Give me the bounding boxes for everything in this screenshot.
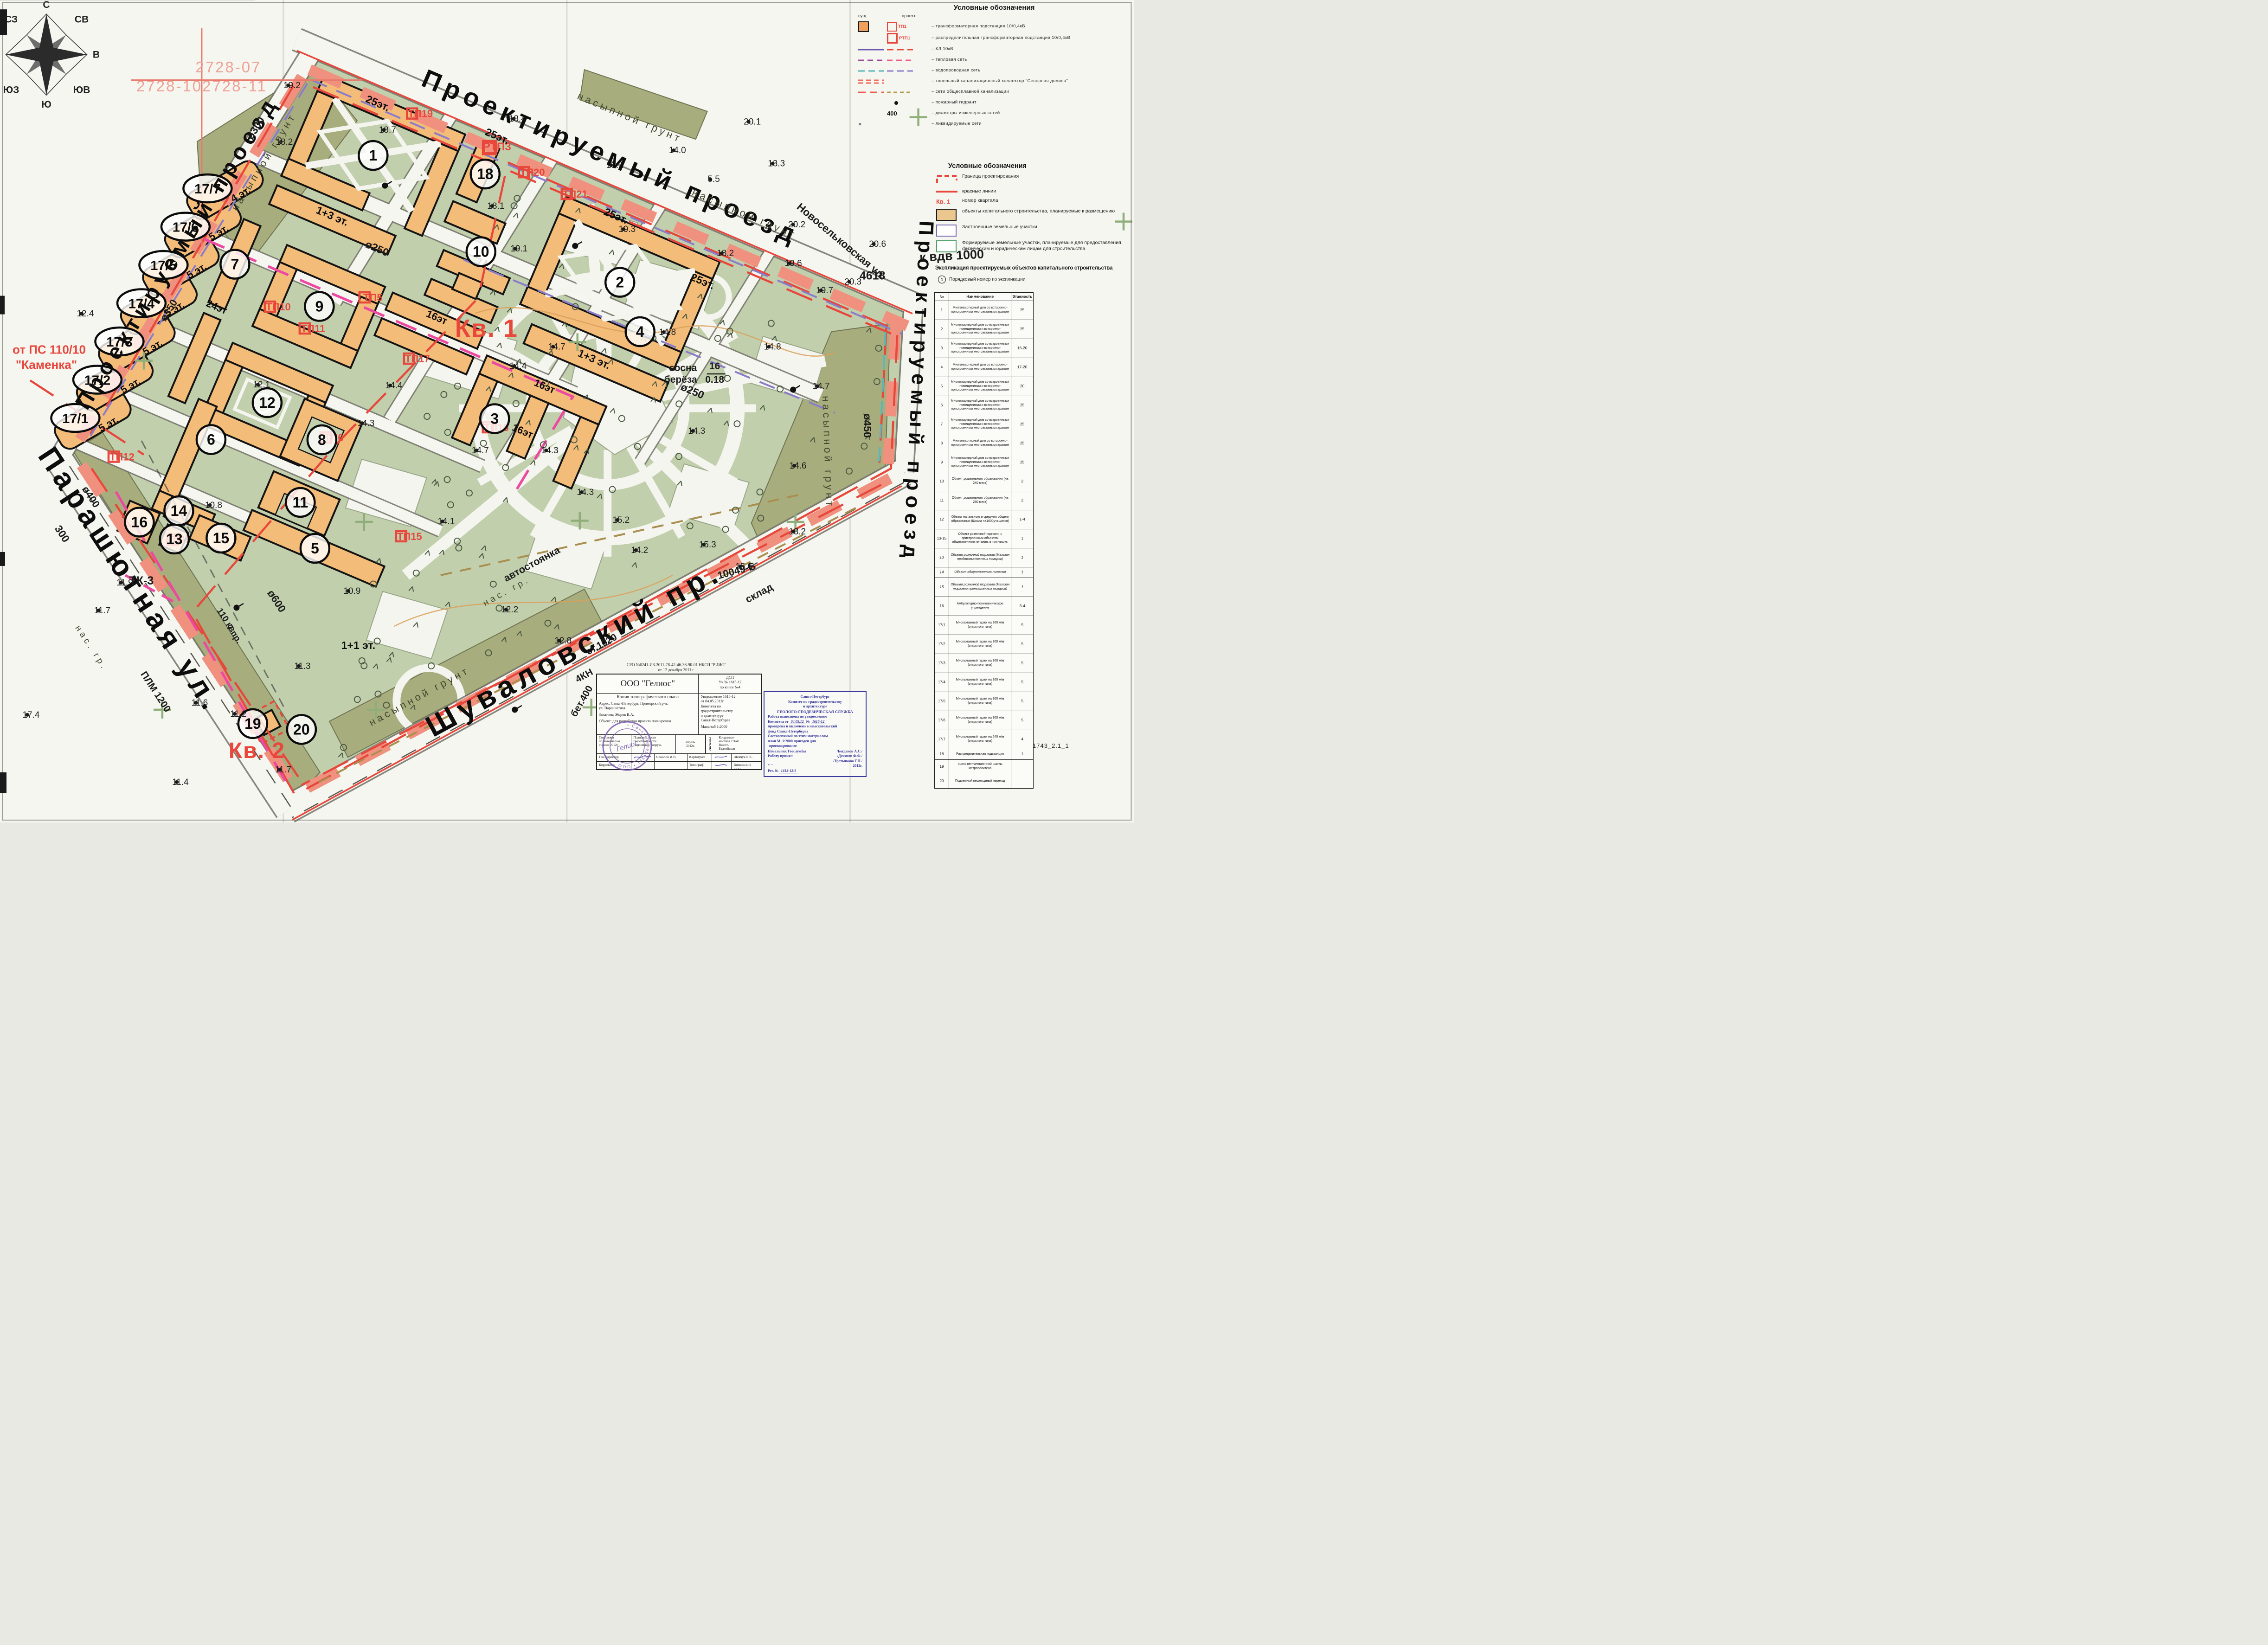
sro-note: СРО №0241-ИЗ-2011-78-42-46-36-90-01 НКСП… bbox=[595, 662, 758, 673]
building-number-text: 1 bbox=[369, 147, 377, 164]
explication-cell: 10 bbox=[935, 472, 949, 491]
explication-cell: Многоквартирный дом со встороено-пристро… bbox=[949, 434, 1011, 453]
elevation-value: 14.3 bbox=[577, 488, 594, 497]
elevation-value: 17.4 bbox=[23, 710, 40, 720]
elevation-value: 14.6 bbox=[790, 461, 807, 471]
explication-cell: 15 bbox=[935, 578, 949, 597]
explication-cell: 17/7 bbox=[935, 730, 949, 749]
explication-row: 17/1Многоэтажный гараж на 300 м/м (откры… bbox=[935, 616, 1034, 635]
diameter-example: 400 bbox=[887, 110, 897, 117]
elevation-value: 14.8 bbox=[659, 328, 676, 337]
util-label: берёза bbox=[664, 374, 697, 385]
util-label: ТК-3 bbox=[129, 574, 154, 587]
explication-cell: Многоквартирный дом со встроенными помещ… bbox=[949, 339, 1011, 358]
elevation-value: 11.2 bbox=[230, 709, 247, 719]
geo-l15a: Рег. № bbox=[768, 769, 778, 773]
explication-row: 15Объект розничной торговли (Магазин тор… bbox=[935, 578, 1034, 597]
explication-cell: 1 bbox=[1011, 548, 1034, 567]
explication-cell: 7 bbox=[935, 415, 949, 434]
explication-cell: 18 bbox=[935, 749, 949, 760]
elevation-value: 19.2 bbox=[283, 81, 301, 90]
legend-row-hydrant: – пожарный гидрант bbox=[858, 98, 1130, 108]
explication-cell: 1 bbox=[1011, 749, 1034, 760]
seal-center-text: Гелиос bbox=[616, 739, 639, 753]
geo-l12: Начальник Геослужбы /Богданов А.С./ bbox=[768, 749, 862, 754]
explication-cell: 1 bbox=[1011, 529, 1034, 548]
geo-l15: Рег. № 1615-12/1 bbox=[768, 769, 862, 774]
legend-row-sewer: – сети общесплавной канализации bbox=[858, 87, 1130, 97]
legend-label: – диаметры инженерных сетей bbox=[932, 111, 1130, 116]
geo-l10: план М. 1:2000 пригоден для bbox=[768, 739, 862, 744]
building-number-text: 12 bbox=[259, 394, 276, 411]
tp-station-label: ТП15 bbox=[397, 531, 422, 542]
elevation-value: 19.7 bbox=[816, 286, 833, 296]
scale-note: Масштаб 1:2000 bbox=[700, 725, 759, 729]
geo-l13c: /Третьякова Г.П./ bbox=[768, 759, 862, 764]
elevation-value: 12.1 bbox=[253, 380, 270, 390]
systems-cell: системы bbox=[706, 735, 717, 753]
legend-label: – пожарный гидрант bbox=[932, 100, 1130, 105]
explication-cell: Многоэтажный гараж на 300 м/м (открытого… bbox=[949, 635, 1011, 654]
explication-row: 17/2Многоэтажный гараж на 300 м/м (откры… bbox=[935, 635, 1034, 654]
col-existing: сущ. bbox=[858, 13, 886, 19]
elevation-value: 11.3 bbox=[294, 662, 311, 671]
explication-row: 12Объект начального и среднего общего об… bbox=[935, 510, 1034, 529]
legend-row-collector: – тонельный канализационный коллектор "С… bbox=[858, 77, 1130, 86]
legend-row-capital: объекты капитального строительства, план… bbox=[936, 208, 1131, 221]
util-label: 0.18 bbox=[705, 374, 724, 385]
explication-title: Экспликация проектируемых объектов капит… bbox=[935, 265, 1134, 271]
explication-cell: 25 bbox=[1011, 320, 1034, 339]
ordinal-note-text: Порядковый номер по экспликации bbox=[949, 277, 1025, 282]
kl-projected-line bbox=[887, 48, 913, 51]
explication-cell: Многоквартирный дом со встроенными помещ… bbox=[949, 415, 1011, 434]
explication-row: 13-15Объект розничной торговли с пристро… bbox=[935, 529, 1034, 548]
elevation-value: 13.3 bbox=[768, 159, 785, 169]
liquidated-symbol: × bbox=[858, 121, 862, 128]
legend-label: – КЛ 10кВ bbox=[932, 47, 1130, 52]
geo-l15b: 1615-12/1 bbox=[779, 769, 797, 773]
tp-station-label: ТП10 bbox=[266, 301, 291, 313]
kl-existing-line bbox=[858, 48, 884, 51]
explication-cell: Многоквартирный дом со встроенными помещ… bbox=[949, 453, 1011, 472]
building-number-text: 6 bbox=[207, 431, 215, 448]
explication-table: № Наименование Этажность 1Многоквартирны… bbox=[934, 292, 1034, 789]
legend-row-liquidated: × – ликвидируемые сети bbox=[858, 119, 1130, 129]
elevation-value: 19.6 bbox=[785, 259, 802, 269]
legend-row-diameters: 400 – диаметры инженерных сетей bbox=[858, 109, 1130, 118]
elevation-value: 14.2 bbox=[631, 546, 648, 555]
legend-row-builtup: Застроенные земельные участки bbox=[936, 224, 1131, 237]
ordinal-circle: 1 bbox=[938, 276, 946, 283]
elevation-value: 20.3 bbox=[844, 277, 861, 287]
explication-cell: 17/6 bbox=[935, 711, 949, 730]
geo-l6c: № bbox=[806, 720, 810, 724]
elevation-value: 14.7 bbox=[813, 382, 830, 392]
tp-station-label: ТП12 bbox=[109, 451, 135, 463]
compass-direction-label: С bbox=[43, 0, 50, 10]
explication-cell: 12 bbox=[935, 510, 949, 529]
legend-label: – ликвидируемые сети bbox=[932, 122, 1130, 127]
explication-cell: 1-4 bbox=[1011, 510, 1034, 529]
building-number-text: 10 bbox=[473, 244, 489, 260]
building-number-text: 7 bbox=[231, 256, 239, 273]
explication-cell: Объект дошкольного образования (на 250 м… bbox=[949, 491, 1011, 510]
date1: апрель bbox=[678, 740, 703, 744]
explication-cell: Многоквартирный дом со встроенными помещ… bbox=[949, 396, 1011, 415]
legend-row-boundary: Граница проектирования bbox=[936, 173, 1131, 185]
legend-row-quarter: Кв. 1 номер квартала bbox=[936, 198, 1131, 205]
rtp-projected-swatch bbox=[887, 33, 898, 44]
explication-cell: Многоэтажный гараж на 300 м/м (открытого… bbox=[949, 692, 1011, 711]
explication-cell bbox=[1011, 760, 1034, 774]
explication-cell: 5 bbox=[1011, 654, 1034, 673]
builtup-swatch bbox=[936, 225, 957, 237]
coord-cell: Координат- местная 1964г. Высот- Балтийс… bbox=[717, 735, 761, 753]
explication-cell: Объект розничной торговли (Магазин торго… bbox=[949, 578, 1011, 597]
explication-cell: 17/3 bbox=[935, 654, 949, 673]
table-header-row: № Наименование Этажность bbox=[935, 293, 1034, 301]
dsp2: Уч.№ 1615-12 bbox=[700, 680, 759, 685]
elevation-value: 14.3 bbox=[541, 446, 559, 456]
elevation-value: 13.2 bbox=[789, 527, 806, 537]
compass-direction-label: ЮВ bbox=[73, 85, 90, 96]
geo-l8: фонд Санкт-Петербурга bbox=[768, 729, 862, 734]
coord3: Высот- bbox=[719, 743, 759, 747]
elevation-value: 15.3 bbox=[699, 540, 716, 550]
date2: 2012г. bbox=[678, 744, 703, 748]
col-projected: проект. bbox=[902, 13, 916, 19]
elevation-value: 12.2 bbox=[501, 605, 518, 615]
water-existing-line bbox=[858, 69, 884, 73]
explication-row: 6Многоквартирный дом со встроенными поме… bbox=[935, 396, 1034, 415]
round-seal: • Санкт-Петербург • ООО Гелиос bbox=[601, 720, 653, 772]
explication-cell: Многоквартирный дом со встороено-пристро… bbox=[949, 358, 1011, 377]
explication-cell: Распределительная подстанция bbox=[949, 749, 1011, 760]
explication-row: 13Объект розничной торговли (Магазин про… bbox=[935, 548, 1034, 567]
explication-cell: Объект общественного питания bbox=[949, 567, 1011, 578]
legend-label: Формируемые земельные участки, планируем… bbox=[962, 240, 1131, 252]
explication-cell: 25 bbox=[1011, 434, 1034, 453]
explication-row: 5Многоквартирный дом со встроенными поме… bbox=[935, 377, 1034, 396]
elevation-value: 14.0 bbox=[669, 146, 686, 155]
notif3: Комитета по bbox=[700, 704, 759, 709]
header-name: Наименование bbox=[949, 293, 1011, 301]
role-cartographer: Картограф bbox=[687, 754, 712, 761]
building-number-text: 15 bbox=[213, 530, 230, 546]
building-number-text: 18 bbox=[477, 166, 494, 182]
building-number-text: 8 bbox=[318, 431, 326, 448]
explication-cell: 17/1 bbox=[935, 616, 949, 635]
explication-cell: 3-4 bbox=[1011, 597, 1034, 616]
elevation-value: 19.3 bbox=[618, 225, 636, 234]
floor-label: 1+1 эт. bbox=[341, 639, 375, 651]
explication-cell: 25 bbox=[1011, 415, 1034, 434]
explication-row: 18Распределительная подстанция1 bbox=[935, 749, 1034, 760]
explication-cell: 8 bbox=[935, 434, 949, 453]
building-number-text: 13 bbox=[166, 531, 183, 547]
document-number: 1743_2.1_1 bbox=[1033, 742, 1069, 749]
explication-cell: 19 bbox=[935, 760, 949, 774]
explication-cell bbox=[1011, 774, 1034, 789]
building-number-text: 9 bbox=[315, 298, 323, 315]
dsp3: по книге №4 bbox=[700, 685, 759, 690]
legend-label: номер квартала bbox=[962, 198, 1131, 204]
boundary-symbol bbox=[936, 174, 957, 185]
legend-label: объекты капитального строительства, план… bbox=[962, 208, 1131, 214]
explication-cell: 5 bbox=[1011, 673, 1034, 692]
building-number-text: 16 bbox=[131, 514, 148, 530]
geo-l13b: /Денисов Ф.Ф./ bbox=[837, 754, 862, 759]
explication-row: 10Объект дошкольного образования (на 240… bbox=[935, 472, 1034, 491]
legend-label: – водопроводная сеть bbox=[932, 68, 1130, 73]
capital-swatch bbox=[936, 209, 957, 221]
tp-existing-swatch bbox=[858, 21, 869, 32]
geo-l6b: 04.05.12 bbox=[790, 720, 805, 724]
notif6: Санкт-Петербурга bbox=[700, 718, 759, 723]
legend-label: – трансформаторная подстанция 10/0,4кВ bbox=[932, 24, 1130, 29]
explication-row: 8Многоквартирный дом со встороено-пристр… bbox=[935, 434, 1034, 453]
kv-label: Кв. 2 bbox=[229, 739, 285, 763]
legend-row-rtp: РТП1 – распределительная трансформаторна… bbox=[858, 33, 1130, 44]
sheetnum-label: 2728-07 bbox=[195, 58, 261, 76]
explication-row: 1Многоквартирный дом со встороено-пристр… bbox=[935, 301, 1034, 320]
notif1: Уведомление 1615-12 bbox=[700, 694, 759, 699]
sewer-existing-line bbox=[858, 90, 884, 94]
elevation-value: 12.4 bbox=[77, 309, 94, 319]
explication-cell: 9 bbox=[935, 453, 949, 472]
elevation-value: 14.3 bbox=[688, 426, 705, 436]
coord1: Координат- bbox=[719, 736, 759, 739]
elevation-value: 14.8 bbox=[764, 342, 781, 352]
dsp-cell: ДСП Уч.№ 1615-12 по книге №4 bbox=[699, 675, 761, 693]
explication-cell: Объект розничной торговли с пристроенным… bbox=[949, 529, 1011, 548]
elevation-value: 14.1 bbox=[437, 517, 455, 527]
tp-projected-swatch bbox=[887, 22, 897, 32]
explication-cell: 13 bbox=[935, 548, 949, 567]
explication-cell: 6 bbox=[935, 396, 949, 415]
legend-networks: Условные обозначения сущ. проект. ТП1 – … bbox=[858, 4, 1130, 130]
explication-note: 1 Порядковый номер по экспликации bbox=[938, 276, 1025, 283]
geo-l2: Комитет по градостроительству bbox=[768, 700, 862, 705]
redline-symbol bbox=[936, 189, 957, 194]
explication-row: 11Объект дошкольного образования (на 250… bbox=[935, 491, 1034, 510]
util-label: 16 bbox=[709, 361, 720, 372]
plan-sheet: ССВВЮВЮЮЗЗСЗ ТП19РТП3ТП20ТП21ТП5ТП10ТП11… bbox=[0, 0, 1134, 822]
explication-row: 16Амбулаторно-поликлиническое учреждение… bbox=[935, 597, 1034, 616]
elevation-value: 14.4 bbox=[509, 361, 527, 371]
util-label: ø450 bbox=[861, 413, 874, 437]
elevation-value: 18.2 bbox=[717, 249, 734, 258]
building-number-text: 20 bbox=[293, 721, 310, 738]
building-number-text: 19 bbox=[244, 715, 261, 732]
notif2: от 04.05.2012г. bbox=[700, 699, 759, 704]
elevation-value: 18.1 bbox=[487, 201, 504, 211]
dsp1: ДСП bbox=[700, 675, 759, 680]
geo-l14b: 2012г. bbox=[853, 764, 862, 769]
sheetnum-label: 2728-102728-11 bbox=[136, 77, 267, 95]
explication-cell: 17/2 bbox=[935, 635, 949, 654]
legend-label: Застроенные земельные участки bbox=[962, 224, 1131, 230]
elevation-value: 14.7 bbox=[548, 342, 565, 352]
explication-cell: Многоэтажный гараж на 300 м/м (открытого… bbox=[949, 673, 1011, 692]
elevation-value: 11.7 bbox=[275, 765, 292, 775]
building-number-text: 5 bbox=[311, 540, 319, 557]
explication-cell: 20 bbox=[1011, 377, 1034, 396]
elevation-value: 14.4 bbox=[385, 381, 402, 391]
explication-cell: Многоквартирный дом со встороено-пристро… bbox=[949, 301, 1011, 320]
elevation-value: 18.7 bbox=[379, 125, 396, 135]
org-name: ООО "Гелиос" bbox=[597, 675, 699, 693]
explication-cell: 2 bbox=[1011, 472, 1034, 491]
explication-cell: 16-20 bbox=[1011, 339, 1034, 358]
sig-cartographer bbox=[712, 754, 732, 761]
explication-row: 19Киоск вентиляционной шахты метрополите… bbox=[935, 760, 1034, 774]
explication-row: 7Многоквартирный дом со встроенными поме… bbox=[935, 415, 1034, 434]
explication-row: 17/3Многоэтажный гараж на 300 м/м (откры… bbox=[935, 654, 1034, 673]
geo-service-stamp: Санкт-Петербург Комитет по градостроител… bbox=[764, 691, 867, 777]
legend-plan: Условные обозначения Граница проектирова… bbox=[936, 162, 1131, 256]
explication-cell: 25 bbox=[1011, 301, 1034, 320]
hydrant-symbol bbox=[887, 101, 913, 105]
sewer-projected-line bbox=[887, 90, 913, 94]
fire-hydrant-symbol bbox=[382, 183, 388, 189]
geo-l13a: Работу принял bbox=[768, 754, 793, 759]
rednote-label: "Каменка" bbox=[16, 358, 77, 372]
compass-direction-label: ЮЗ bbox=[3, 85, 19, 96]
name-sokolov: Соколов И.В. bbox=[655, 754, 687, 761]
legend-label: Граница проектирования bbox=[962, 173, 1131, 180]
geo-l4: ГЕОЛОГО-ГЕОДЕЗИЧЕСКАЯ СЛУЖБА bbox=[768, 709, 862, 714]
explication-cell: Подземный пешеходный переход bbox=[949, 774, 1011, 789]
building-number-text: 4 bbox=[636, 323, 644, 340]
legend-label: красные линии bbox=[962, 188, 1131, 194]
compass-direction-label: Ю bbox=[41, 99, 51, 110]
explication-cell: 25 bbox=[1011, 453, 1034, 472]
explication-row: 17/5Многоэтажный гараж на 300 м/м (откры… bbox=[935, 692, 1034, 711]
legend-label: – распределительная трансформаторная под… bbox=[932, 36, 1130, 41]
coord4: Балтийская bbox=[719, 747, 759, 751]
doc-address1: Адрес: Санкт-Петербург, Приморский р-н, bbox=[599, 701, 696, 706]
building-number-text: 14 bbox=[171, 502, 187, 519]
rednote-label: от ПС 110/10 bbox=[13, 343, 86, 357]
explication-row: 17/6Многоэтажный гараж на 300 м/м (откры… bbox=[935, 711, 1034, 730]
explication-cell: 1 bbox=[1011, 567, 1034, 578]
explication-cell: 5 bbox=[1011, 616, 1034, 635]
elevation-value: 14.3 bbox=[357, 418, 374, 428]
geo-l6: Комитета от 04.05.12 № 1615-12 bbox=[768, 720, 862, 725]
tp-station-label: ТП21 bbox=[563, 188, 588, 200]
explication-cell: 3 bbox=[935, 339, 949, 358]
legend-row-water: – водопроводная сеть bbox=[858, 66, 1130, 76]
explication-cell: 17/5 bbox=[935, 692, 949, 711]
explication-cell: 20 bbox=[935, 774, 949, 789]
explication-cell: Амбулаторно-поликлиническое учреждение bbox=[949, 597, 1011, 616]
explication-cell: Многоэтажный гараж на 300 м/м (открытого… bbox=[949, 654, 1011, 673]
explication-cell: 4 bbox=[1011, 730, 1034, 749]
elevation-value: 20.1 bbox=[744, 117, 761, 127]
geo-l12a: Начальник Геослужбы bbox=[768, 749, 806, 754]
kv-label: Кв. 1 bbox=[455, 315, 518, 342]
explication-cell: 5 bbox=[1011, 692, 1034, 711]
explication-cell: Объект дошкольного образования (на 240 м… bbox=[949, 472, 1011, 491]
geo-l11: проектирования bbox=[768, 744, 798, 749]
explication-row: 4Многоквартирный дом со встороено-пристр… bbox=[935, 358, 1034, 377]
legend-row-heat: – тепловая сеть bbox=[858, 55, 1130, 65]
geo-l6a: Комитета от bbox=[768, 720, 789, 724]
explication-cell: Многоэтажный гараж на 240 м/м (открытого… bbox=[949, 730, 1011, 749]
explication-cell: 16 bbox=[935, 597, 949, 616]
explication-cell: 5 bbox=[935, 377, 949, 396]
collector-line bbox=[858, 79, 884, 84]
explication-row: 2Многоквартирный дом со встроенными поме… bbox=[935, 320, 1034, 339]
legend-row-tp: ТП1 – трансформаторная подстанция 10/0,4… bbox=[858, 21, 1130, 32]
explication-cell: 17/4 bbox=[935, 673, 949, 692]
geo-l3: и архитектуре bbox=[768, 704, 862, 709]
explication-cell: Многоэтажный гараж на 300 м/м (открытого… bbox=[949, 616, 1011, 635]
sro-line1: СРО №0241-ИЗ-2011-78-42-46-36-90-01 НКСП… bbox=[595, 662, 758, 668]
legend-columns: сущ. проект. bbox=[858, 13, 1130, 19]
notif5: и архитектуре bbox=[700, 713, 759, 718]
legend-row-formed: Формируемые земельные участки, планируем… bbox=[936, 240, 1131, 252]
header-floors: Этажность bbox=[1011, 293, 1034, 301]
explication-row: 20Подземный пешеходный переход bbox=[935, 774, 1034, 789]
doc-address2: ул. Парашютная bbox=[599, 706, 696, 711]
geo-l5: Работа выполнена по уведомлению bbox=[768, 714, 862, 720]
legend-row-redlines: красные линии bbox=[936, 188, 1131, 194]
rtp-label: РТП1 bbox=[899, 36, 910, 41]
explication-cell: 2 bbox=[1011, 491, 1034, 510]
explication-cell: Многоквартирный дом со встроенными помещ… bbox=[949, 320, 1011, 339]
coord2: местная 1964г. bbox=[719, 739, 759, 743]
explication-cell: 13-15 bbox=[935, 529, 949, 548]
explication-cell: Киоск вентиляционной шахты метрополитена bbox=[949, 760, 1011, 774]
header-number: № bbox=[935, 293, 949, 301]
building-number-text: 11 bbox=[292, 494, 308, 511]
geo-l7: проверена и включена в изыскательский bbox=[768, 724, 862, 729]
geo-l14: " " 2012г. bbox=[768, 764, 862, 769]
name-empty bbox=[655, 762, 687, 769]
geo-l9: Составленный по этим материалам bbox=[768, 734, 862, 739]
geo-l13: Работу принял /Денисов Ф.Ф./ bbox=[768, 754, 862, 759]
geo-l6d: 1615-12 bbox=[811, 720, 826, 724]
explication-cell: 5 bbox=[1011, 711, 1034, 730]
role-topographer: Топограф bbox=[687, 762, 712, 769]
sig-topographer bbox=[712, 762, 732, 769]
elevation-value: 15.2 bbox=[612, 515, 630, 525]
explication-cell: 1 bbox=[1011, 578, 1034, 597]
tp-label: ТП1 bbox=[898, 24, 906, 29]
doc-title: Копия топографического плана bbox=[599, 694, 696, 700]
tp-station-label: ТП19 bbox=[408, 108, 433, 120]
explication-cell: Многоквартирный дом со встроенными помещ… bbox=[949, 377, 1011, 396]
geo-l14a: " " bbox=[768, 764, 773, 769]
tp-station-label: ТП20 bbox=[520, 167, 545, 178]
explication-row: 3Многоквартирный дом со встроенными поме… bbox=[935, 339, 1034, 358]
elevation-value: 19.1 bbox=[510, 244, 527, 254]
tp-station-label: ТП5 bbox=[363, 292, 382, 303]
explication-row: 17/7Многоэтажный гараж на 240 м/м (откры… bbox=[935, 730, 1034, 749]
explication-row: 14Объект общественного питания1 bbox=[935, 567, 1034, 578]
name-shevchuk: Шевчук Е.К. bbox=[732, 754, 761, 761]
heat-projected-line bbox=[887, 58, 913, 62]
notification-cell: Уведомление 1615-12 от 04.05.2012г. Коми… bbox=[699, 694, 761, 734]
heat-existing-line bbox=[858, 58, 884, 62]
geo-l12b: /Богданов А.С./ bbox=[837, 749, 862, 754]
notif4: градостроительству bbox=[700, 709, 759, 713]
elevation-value: 10.8 bbox=[205, 501, 222, 510]
elevation-value: 10.9 bbox=[343, 586, 360, 596]
